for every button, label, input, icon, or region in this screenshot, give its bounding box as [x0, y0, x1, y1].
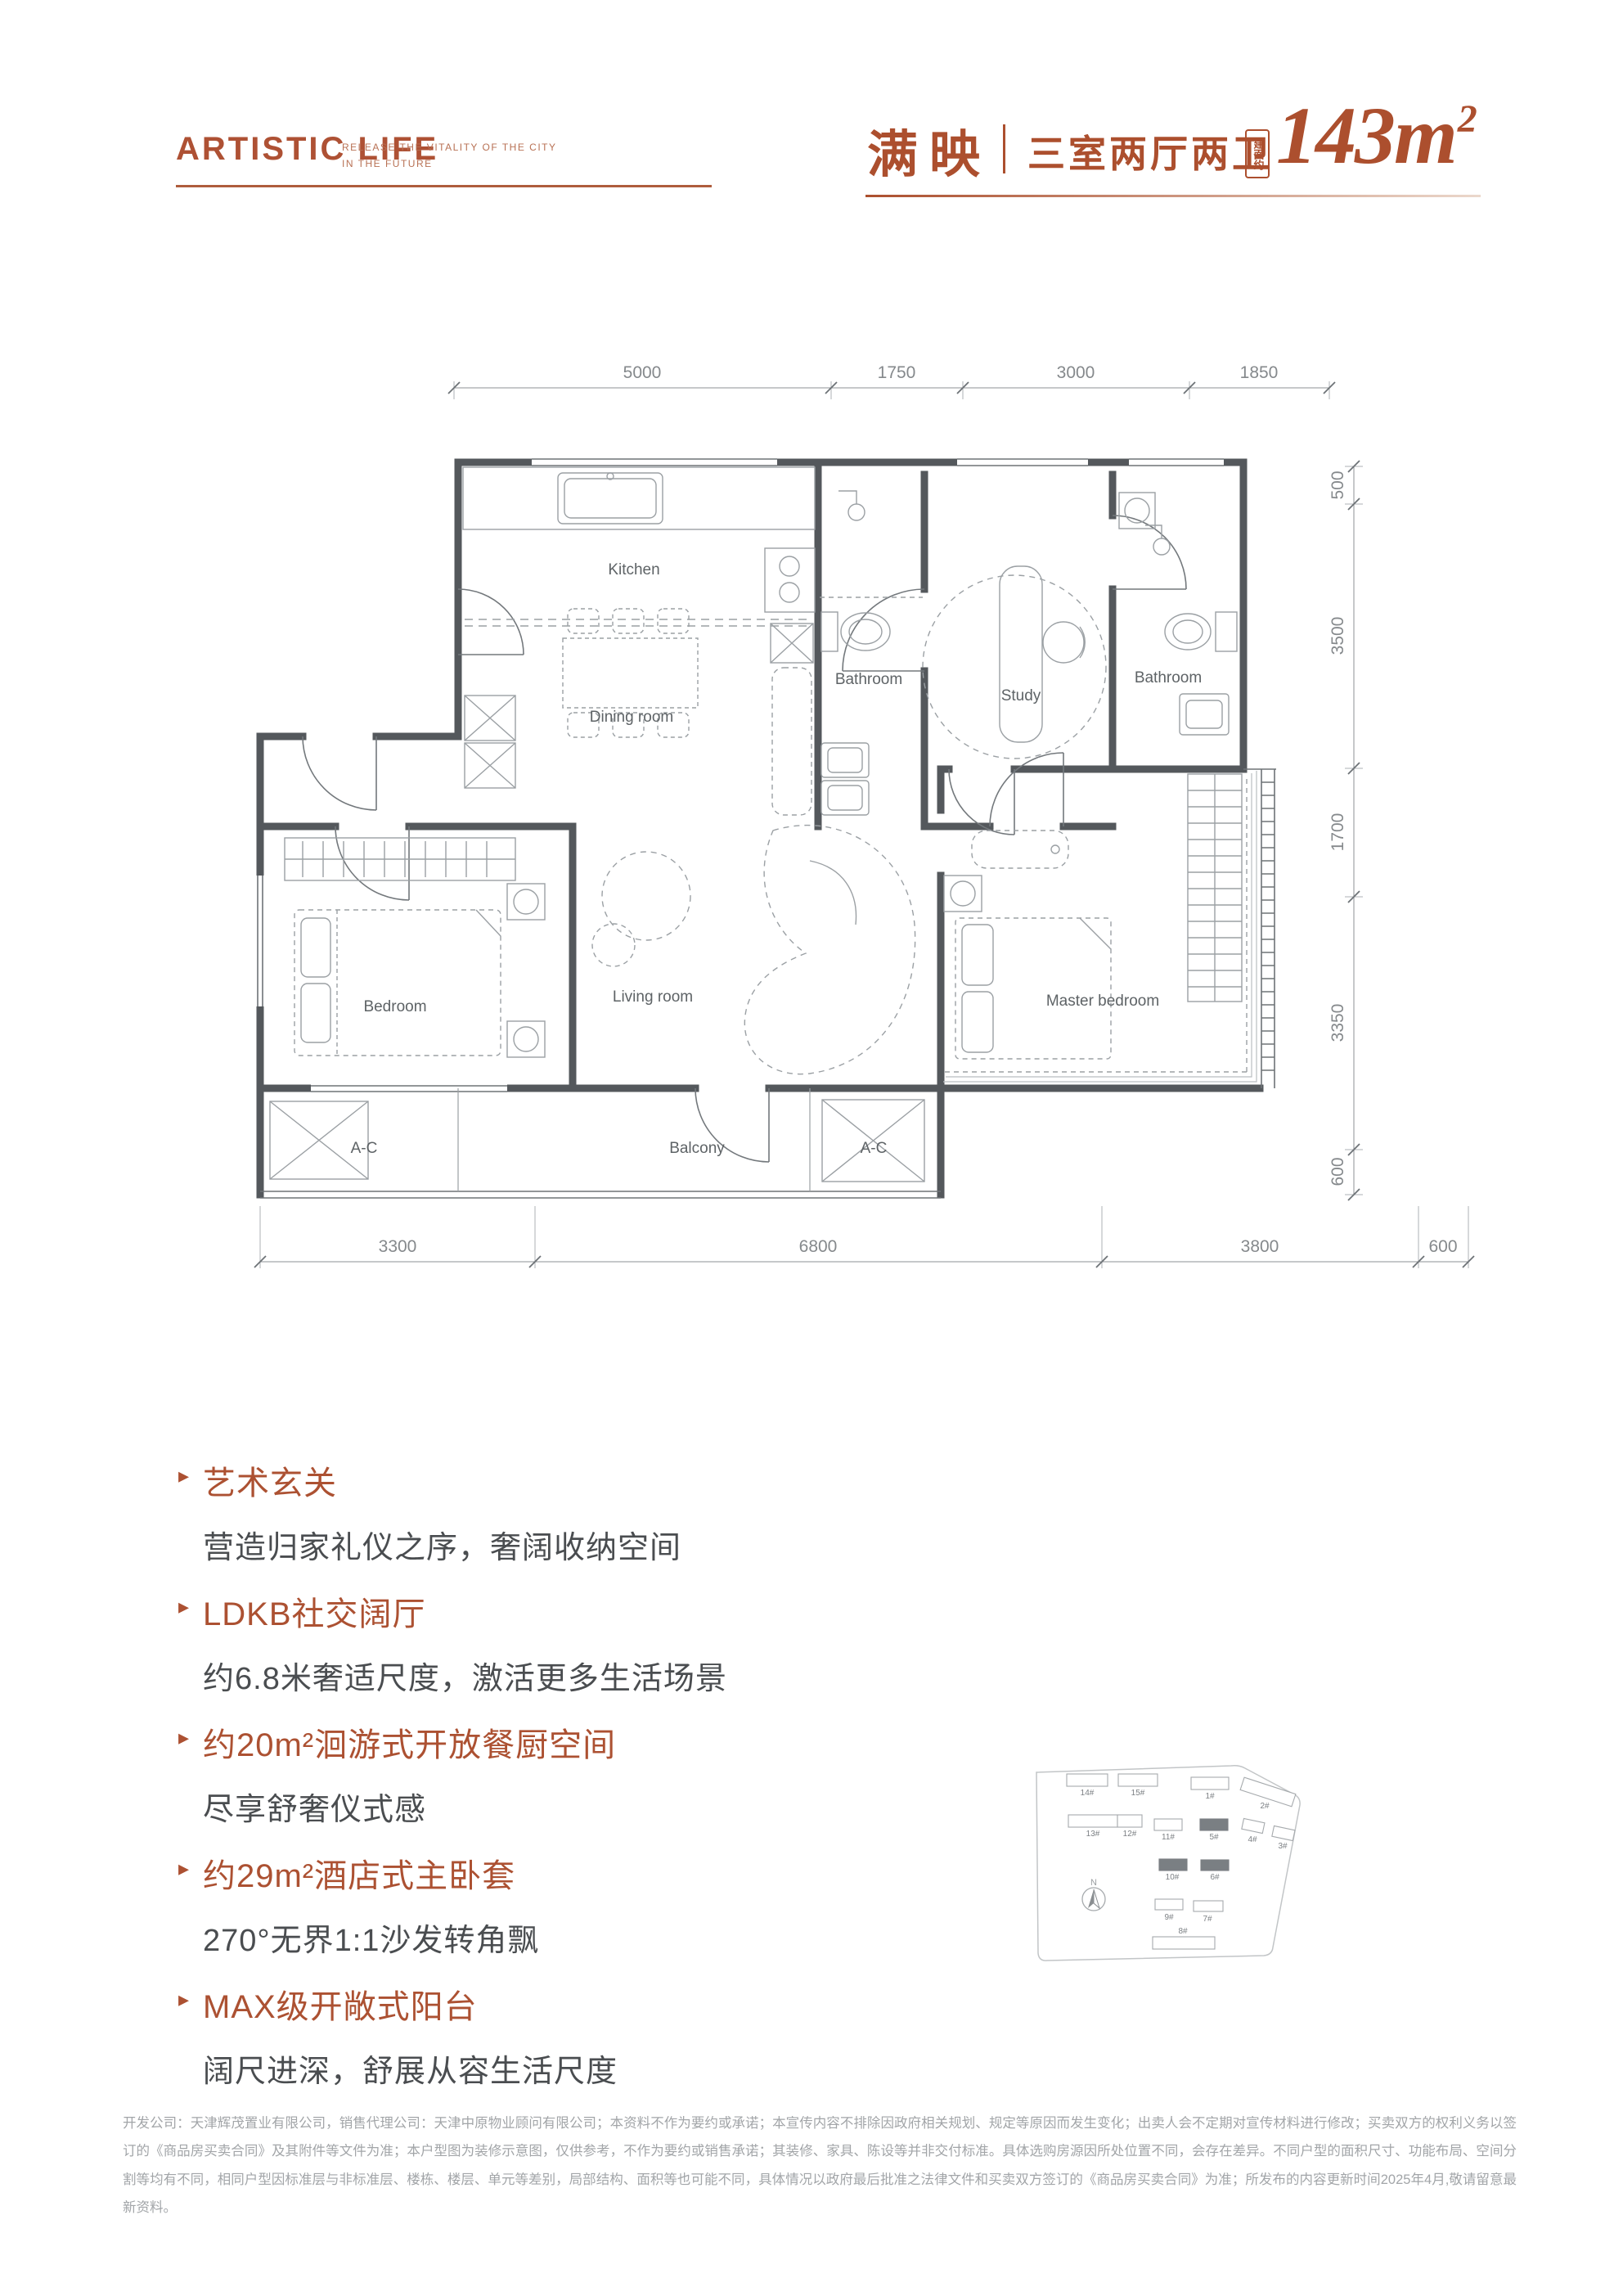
room-label: Bathroom [835, 671, 902, 688]
area-unit: m [1394, 90, 1456, 181]
title-underline [865, 195, 1481, 197]
plan-name: 满映 [867, 113, 991, 187]
dimension-label: 3800 [1241, 1237, 1279, 1256]
title-divider [1003, 124, 1005, 173]
bullet-icon: ▸ [178, 1856, 189, 1881]
room-label: Dining room [590, 709, 673, 726]
building-label: 15# [1131, 1789, 1145, 1798]
bullet-icon: ▸ [178, 1463, 189, 1488]
feature-desc: 约6.8米奢适尺度，激活更多生活场景 [203, 1653, 727, 1698]
building-label: 5# [1209, 1833, 1219, 1842]
bullet-icon: ▸ [178, 1725, 189, 1750]
building-label: 11# [1162, 1833, 1175, 1842]
logo-underline [176, 185, 712, 187]
dimension-label: 1850 [1240, 363, 1279, 382]
room-label: A-C [351, 1140, 378, 1157]
building-label: 2# [1260, 1802, 1270, 1811]
area-number: 143 [1276, 90, 1394, 181]
feature-desc: 尽享舒奢仪式感 [203, 1784, 426, 1829]
building-label: 6# [1210, 1873, 1220, 1882]
disclaimer-text: 开发公司：天津辉茂置业有限公司，销售代理公司：天津中原物业顾问有限公司；本资料不… [123, 2109, 1517, 2222]
feature-title: LDKB社交阔厅 [203, 1587, 426, 1635]
doors [303, 515, 1186, 1162]
building-label: 3# [1278, 1842, 1288, 1851]
dimension-label: 3300 [379, 1237, 417, 1256]
room-label: Master bedroom [1046, 993, 1159, 1010]
logo-subtitle: RELEASE THE VITALITY OF THE CITY IN THE … [342, 139, 557, 173]
building-label: 13# [1086, 1830, 1100, 1839]
building-label: 14# [1081, 1789, 1095, 1798]
dimension-label: 3000 [1057, 363, 1095, 382]
room-label: Balcony [669, 1140, 725, 1157]
compass-icon: N [1082, 1878, 1105, 1911]
building-label: 10# [1166, 1873, 1180, 1882]
area-sup: 2 [1458, 97, 1476, 141]
dimension-label: 600 [1329, 1157, 1347, 1186]
feature-title: 约20m²洄游式开放餐厨空间 [203, 1718, 616, 1766]
room-label: Living room [613, 988, 693, 1006]
compass-north-label: N [1090, 1878, 1097, 1888]
area-badge: 建面约 [1245, 129, 1270, 178]
feature-title: MAX级开敞式阳台 [203, 1980, 478, 2028]
building-label: 12# [1123, 1830, 1137, 1839]
building-label: 7# [1203, 1915, 1212, 1924]
bullet-icon: ▸ [178, 1594, 189, 1619]
dimension-label: 1750 [878, 363, 916, 382]
logo-subtitle-line2: IN THE FUTURE [342, 155, 557, 172]
room-label: Kitchen [608, 561, 659, 579]
feature-desc: 270°无界1:1沙发转角飘 [203, 1915, 539, 1960]
feature-title: 艺术玄关 [203, 1456, 337, 1504]
room-label: A-C [861, 1140, 888, 1157]
area-value: 143m2 [1276, 88, 1476, 182]
room-label: Study [1001, 687, 1041, 705]
floor-plan-drawing: 5000 1750 3000 1850 500 3500 1700 3350 6… [237, 352, 1513, 1317]
building-label: 8# [1178, 1927, 1188, 1936]
dimension-label: 600 [1428, 1237, 1457, 1256]
building-label: 9# [1164, 1913, 1174, 1922]
feature-desc: 阔尺进深，舒展从容生活尺度 [203, 2046, 618, 2091]
dimension-label: 3500 [1329, 617, 1347, 655]
bullet-icon: ▸ [178, 1987, 189, 2012]
dimension-label: 1700 [1329, 813, 1347, 852]
feature-title: 约29m²酒店式主卧套 [203, 1849, 515, 1897]
dimension-label: 6800 [799, 1237, 838, 1256]
layout-type: 三室两厅两卫 [1027, 124, 1273, 178]
dimension-label: 3350 [1329, 1004, 1347, 1042]
site-plan-map: 14# 15# 1# 2# 13# 12# 11# 5# 4# 3# 10# 6… [1006, 1743, 1366, 2013]
feature-desc: 营造归家礼仪之序，奢阔收纳空间 [203, 1522, 681, 1567]
building-label: 1# [1205, 1792, 1215, 1801]
dimension-label: 500 [1329, 470, 1347, 499]
room-label: Bedroom [363, 998, 426, 1015]
site-buildings [1067, 1774, 1296, 1949]
dimension-label: 5000 [623, 363, 662, 382]
logo-subtitle-line1: RELEASE THE VITALITY OF THE CITY [342, 139, 557, 155]
room-label: Bathroom [1135, 669, 1202, 687]
building-label: 4# [1248, 1835, 1257, 1844]
dimension-labels: 5000 1750 3000 1850 500 3500 1700 3350 6… [379, 363, 1458, 1256]
